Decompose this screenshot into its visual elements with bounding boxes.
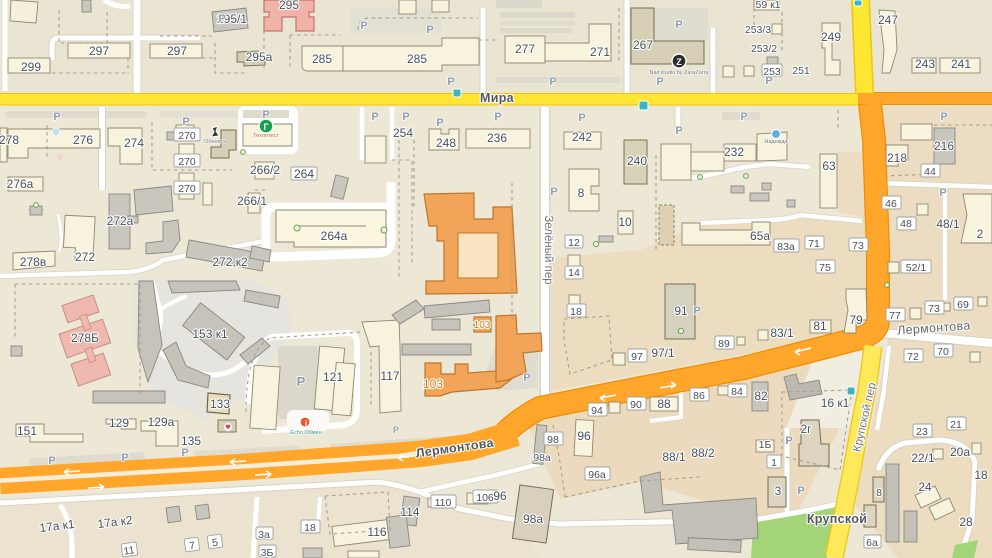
svg-text:285: 285 <box>407 52 427 66</box>
svg-text:18: 18 <box>304 522 316 534</box>
svg-text:28: 28 <box>959 515 973 529</box>
svg-text:Р: Р <box>436 117 443 129</box>
svg-text:218: 218 <box>887 151 907 165</box>
svg-text:69: 69 <box>957 299 969 311</box>
svg-text:98а: 98а <box>523 512 543 526</box>
svg-text:70: 70 <box>937 346 949 358</box>
svg-text:Р: Р <box>550 186 557 198</box>
svg-text:71: 71 <box>808 238 820 250</box>
svg-text:Р: Р <box>785 435 792 447</box>
svg-text:Р: Р <box>297 374 306 389</box>
svg-text:6а: 6а <box>866 537 878 549</box>
svg-text:266/1: 266/1 <box>237 194 267 208</box>
svg-text:97: 97 <box>631 351 643 363</box>
svg-text:274: 274 <box>124 136 144 150</box>
svg-text:Р: Р <box>53 111 60 123</box>
svg-text:63: 63 <box>822 159 836 173</box>
svg-text:110: 110 <box>435 497 452 509</box>
svg-text:Р: Р <box>549 76 556 88</box>
svg-text:129: 129 <box>109 416 129 430</box>
svg-text:i: i <box>305 419 307 428</box>
svg-text:129а: 129а <box>148 415 175 429</box>
svg-text:270: 270 <box>178 130 196 142</box>
svg-text:Р: Р <box>523 372 530 384</box>
svg-text:Г: Г <box>263 122 268 132</box>
svg-text:96а: 96а <box>588 469 606 481</box>
svg-text:153 к1: 153 к1 <box>192 327 228 341</box>
svg-text:276а: 276а <box>7 177 34 191</box>
svg-text:83/1: 83/1 <box>770 326 794 340</box>
svg-text:272: 272 <box>75 250 95 264</box>
svg-text:278: 278 <box>0 133 19 147</box>
svg-text:10: 10 <box>618 215 632 229</box>
svg-text:8: 8 <box>876 487 882 499</box>
svg-text:3Б: 3Б <box>261 547 274 558</box>
svg-text:Р: Р <box>182 116 189 128</box>
svg-text:98: 98 <box>547 434 559 446</box>
svg-text:Надежда: Надежда <box>764 139 788 145</box>
svg-text:14: 14 <box>568 267 580 279</box>
svg-text:285: 285 <box>312 52 332 66</box>
svg-text:253/3: 253/3 <box>745 24 771 36</box>
svg-text:65а: 65а <box>750 229 770 243</box>
svg-text:264: 264 <box>294 167 314 181</box>
svg-text:1Б: 1Б <box>759 439 772 451</box>
svg-text:135: 135 <box>181 434 201 448</box>
svg-text:Мира: Мира <box>480 91 515 105</box>
svg-text:272 к2: 272 к2 <box>212 255 248 269</box>
svg-text:23: 23 <box>916 426 928 438</box>
svg-text:24: 24 <box>918 480 932 494</box>
svg-text:Р: Р <box>656 76 663 88</box>
svg-text:116: 116 <box>367 525 386 539</box>
svg-text:16 к1: 16 к1 <box>821 396 850 410</box>
svg-text:Крупской: Крупской <box>807 512 867 526</box>
svg-text:Р: Р <box>765 75 772 87</box>
svg-text:3а: 3а <box>258 529 270 541</box>
svg-text:98а: 98а <box>533 452 551 464</box>
svg-text:266/2: 266/2 <box>250 163 280 177</box>
svg-text:2: 2 <box>977 227 984 241</box>
svg-text:Р: Р <box>218 13 225 25</box>
svg-text:216: 216 <box>934 139 954 153</box>
svg-text:88: 88 <box>657 397 671 411</box>
svg-text:253/2: 253/2 <box>751 43 777 55</box>
svg-text:48/1: 48/1 <box>936 217 960 231</box>
svg-text:20а: 20а <box>950 445 970 459</box>
svg-text:Р: Р <box>447 76 454 88</box>
svg-text:121: 121 <box>323 370 343 384</box>
svg-text:151: 151 <box>17 424 37 438</box>
svg-text:Р: Р <box>675 125 682 137</box>
svg-text:96: 96 <box>493 489 507 503</box>
svg-text:133: 133 <box>210 397 230 411</box>
svg-text:103: 103 <box>423 377 443 391</box>
svg-text:249: 249 <box>821 30 841 44</box>
svg-text:81: 81 <box>813 319 827 333</box>
svg-text:94: 94 <box>591 405 603 417</box>
svg-text:Зелёный пер: Зелёный пер <box>542 215 554 284</box>
svg-text:242: 242 <box>572 130 592 144</box>
svg-text:Z: Z <box>676 57 682 67</box>
svg-text:86: 86 <box>693 390 705 402</box>
svg-text:75: 75 <box>819 262 831 274</box>
svg-text:247: 247 <box>878 13 898 27</box>
svg-text:72: 72 <box>907 351 919 363</box>
svg-text:Nail studio by ZaraZarra: Nail studio by ZaraZarra <box>650 70 710 76</box>
svg-text:8: 8 <box>578 186 585 200</box>
svg-text:Р: Р <box>740 111 747 123</box>
svg-text:264а: 264а <box>321 229 348 243</box>
svg-text:248: 248 <box>436 136 456 150</box>
svg-text:Р: Р <box>940 111 947 123</box>
svg-text:22/1: 22/1 <box>911 451 935 465</box>
svg-text:232: 232 <box>724 145 744 159</box>
svg-text:Р: Р <box>48 455 55 467</box>
svg-text:Р: Р <box>393 425 399 435</box>
svg-text:254: 254 <box>393 126 413 140</box>
svg-text:236: 236 <box>487 131 507 145</box>
svg-text:18: 18 <box>974 468 988 482</box>
svg-text:270: 270 <box>178 183 196 195</box>
svg-text:106: 106 <box>476 492 494 504</box>
svg-text:297: 297 <box>89 44 109 58</box>
svg-text:59 к1: 59 к1 <box>755 0 780 11</box>
svg-text:90: 90 <box>630 399 642 411</box>
svg-text:278Б: 278Б <box>71 331 99 345</box>
svg-text:44: 44 <box>924 166 936 178</box>
svg-text:2г: 2г <box>800 422 812 436</box>
svg-text:83а: 83а <box>777 241 795 253</box>
svg-text:Техлотест: Техлотест <box>253 133 279 139</box>
svg-text:11: 11 <box>123 544 136 557</box>
svg-text:Обелиск: Обелиск <box>204 139 226 145</box>
svg-text:272а: 272а <box>107 214 134 228</box>
svg-text:295: 295 <box>279 0 299 12</box>
svg-text:96: 96 <box>577 429 591 443</box>
svg-text:79: 79 <box>849 313 863 327</box>
svg-text:97/1: 97/1 <box>651 346 675 360</box>
svg-text:Echo Обмен: Echo Обмен <box>290 430 321 436</box>
svg-text:297: 297 <box>167 44 187 58</box>
svg-text:91: 91 <box>674 304 688 318</box>
svg-text:276: 276 <box>73 133 93 147</box>
svg-text:Р: Р <box>181 447 188 459</box>
svg-text:Р: Р <box>402 111 409 123</box>
svg-text:1: 1 <box>771 457 777 469</box>
svg-text:295а: 295а <box>246 50 273 64</box>
svg-text:299: 299 <box>21 60 41 74</box>
svg-text:Р: Р <box>371 111 378 123</box>
svg-text:Р: Р <box>426 24 433 36</box>
svg-text:77: 77 <box>889 310 901 322</box>
svg-text:18: 18 <box>570 306 582 318</box>
svg-text:103: 103 <box>474 320 491 331</box>
svg-text:89: 89 <box>718 338 730 350</box>
svg-text:278в: 278в <box>20 255 46 269</box>
svg-text:243: 243 <box>915 57 935 71</box>
svg-text:48: 48 <box>900 218 912 230</box>
svg-text:Р: Р <box>360 20 367 32</box>
svg-text:73: 73 <box>928 303 940 315</box>
svg-text:240: 240 <box>627 154 647 168</box>
svg-text:84: 84 <box>731 386 743 398</box>
svg-text:Р: Р <box>121 452 128 464</box>
svg-text:Р: Р <box>494 111 501 123</box>
svg-text:21: 21 <box>950 419 962 431</box>
svg-text:73: 73 <box>852 240 864 252</box>
svg-text:241: 241 <box>951 57 971 71</box>
svg-text:12: 12 <box>568 237 580 249</box>
svg-text:Р: Р <box>693 305 700 317</box>
svg-text:Р: Р <box>578 112 585 124</box>
svg-text:88/2: 88/2 <box>691 446 715 460</box>
svg-text:271: 271 <box>590 45 610 59</box>
svg-text:52/1: 52/1 <box>906 262 927 274</box>
svg-text:277: 277 <box>515 42 535 56</box>
svg-text:Р: Р <box>797 485 804 497</box>
svg-text:46: 46 <box>885 198 897 210</box>
svg-text:114: 114 <box>400 505 419 519</box>
svg-text:3: 3 <box>775 484 782 498</box>
svg-text:117: 117 <box>380 369 399 383</box>
svg-text:Р: Р <box>675 19 682 31</box>
svg-text:270: 270 <box>178 156 196 168</box>
svg-text:267: 267 <box>633 38 653 52</box>
svg-text:82: 82 <box>754 389 768 403</box>
svg-text:251: 251 <box>792 65 810 77</box>
svg-text:Р: Р <box>939 187 946 199</box>
svg-text:88/1: 88/1 <box>662 450 686 464</box>
